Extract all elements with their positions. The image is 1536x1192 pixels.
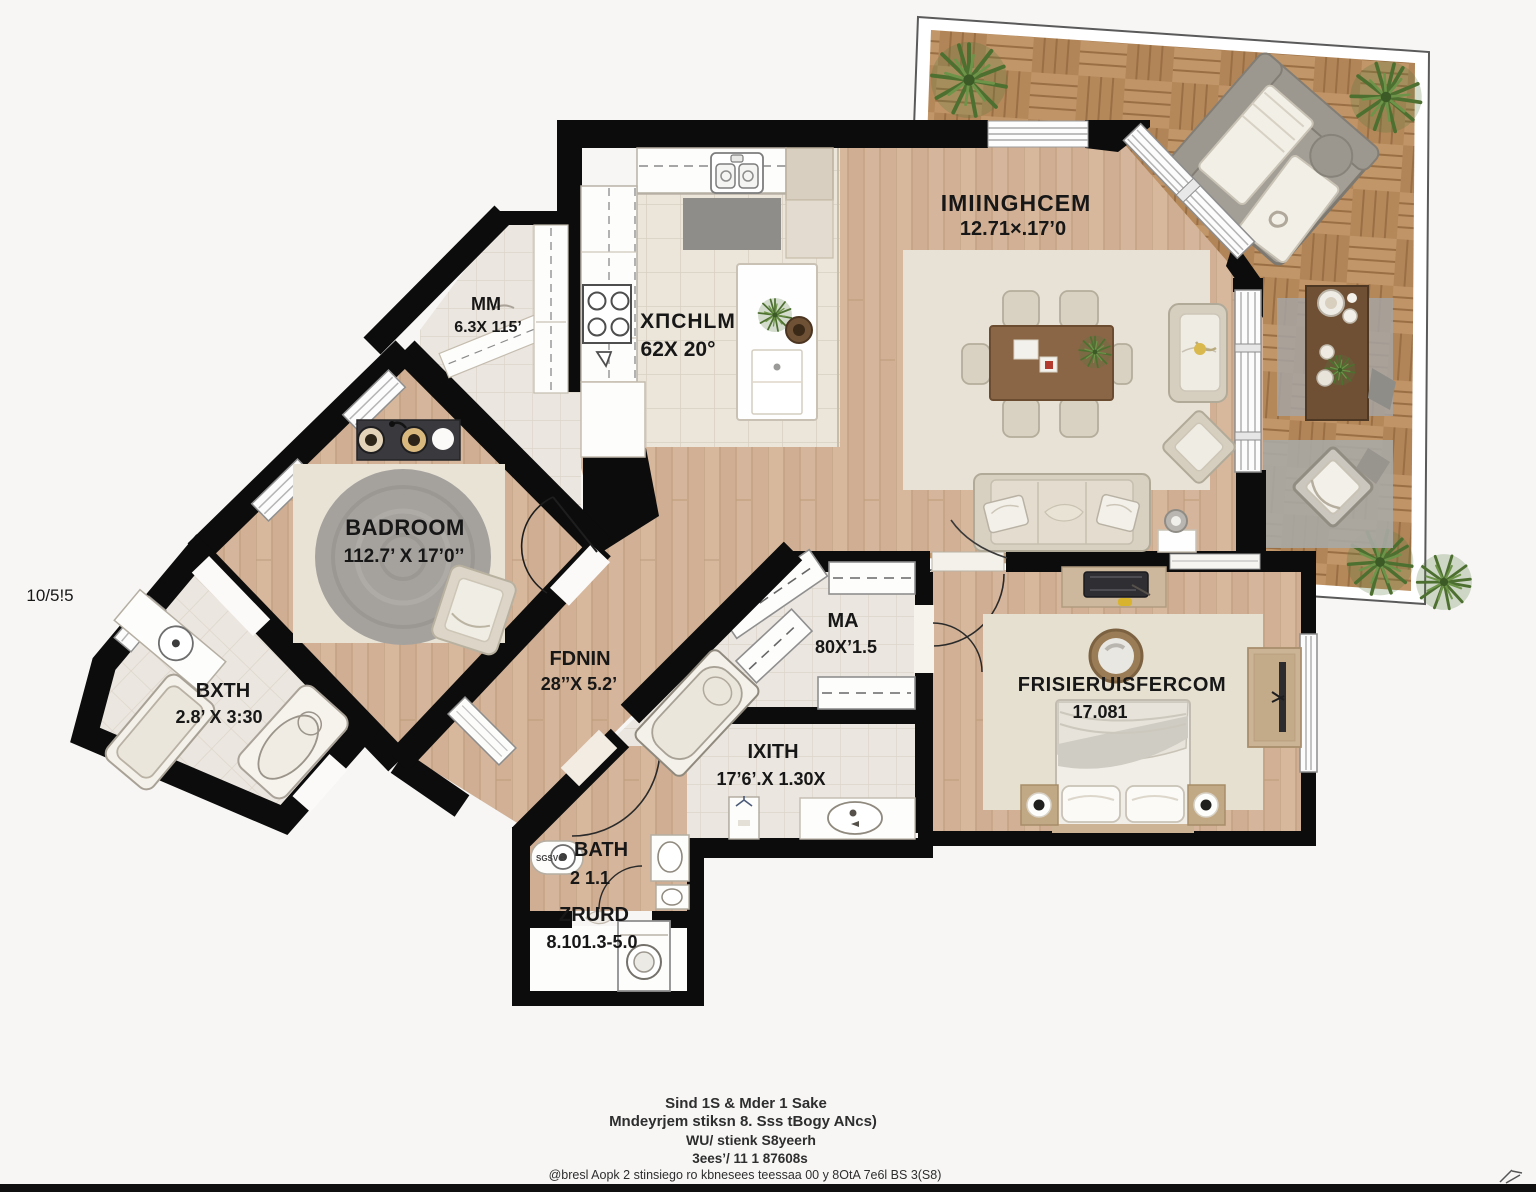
svg-text:Sind 1S & Mder 1 Sake: Sind 1S & Mder 1 Sake [665,1095,827,1112]
svg-text:BADROOM: BADROOM [345,515,465,540]
svg-text:WU/ stienk S8yeerh: WU/ stienk S8yeerh [686,1132,816,1148]
svg-text:@bresl Aopk 2 stinsiego ro kbn: @bresl Aopk 2 stinsiego ro kbnesees tees… [549,1168,942,1182]
svg-text:112.7’ X 17’0’’: 112.7’ X 17’0’’ [344,546,465,567]
svg-text:10/5!5: 10/5!5 [26,586,73,605]
svg-text:6.3X 115’: 6.3X 115’ [454,319,522,336]
svg-text:3ees’/ 11 1 87608s: 3ees’/ 11 1 87608s [692,1151,808,1166]
svg-text:2 1.1: 2 1.1 [570,868,610,888]
svg-text:80X’1.5: 80X’1.5 [815,637,877,657]
svg-text:17.081: 17.081 [1072,702,1127,722]
svg-text:Mndeyrjem stiksn 8. Sss tBogy: Mndeyrjem stiksn 8. Sss tBogy ANcs) [609,1113,877,1130]
svg-text:2.8’ X 3:30: 2.8’ X 3:30 [175,707,262,727]
svg-text:MM: MM [471,294,501,314]
svg-text:IMIINGHCEM: IMIINGHCEM [941,190,1092,216]
svg-text:12.71×.17’0: 12.71×.17’0 [960,218,1066,240]
svg-text:BXTH: BXTH [196,680,250,702]
svg-text:17’6’.X 1.30X: 17’6’.X 1.30X [716,769,825,789]
svg-text:ZRURD: ZRURD [559,904,629,926]
svg-text:IXITH: IXITH [747,741,798,763]
svg-text:BATH: BATH [574,839,628,861]
svg-text:XПCHLM: XПCHLM [640,310,736,333]
svg-text:8.101.3-5.0: 8.101.3-5.0 [546,932,637,952]
svg-text:62X 20°: 62X 20° [641,338,716,361]
svg-text:28’’X 5.2’: 28’’X 5.2’ [541,674,617,694]
svg-text:SGSVG: SGSVG [536,854,564,863]
svg-text:FDNIN: FDNIN [549,648,610,670]
svg-text:FRISIERUISFERCOM: FRISIERUISFERCOM [1018,674,1227,696]
svg-text:MA: MA [827,610,858,632]
